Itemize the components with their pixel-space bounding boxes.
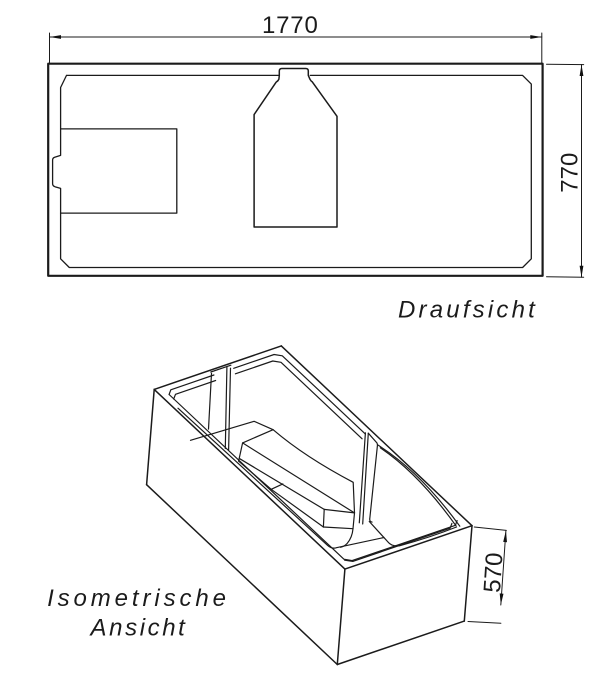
svg-text:1770: 1770: [262, 12, 319, 39]
svg-text:Isometrische: Isometrische: [47, 585, 230, 612]
svg-text:770: 770: [556, 153, 583, 193]
svg-text:Ansicht: Ansicht: [89, 615, 188, 642]
svg-text:570: 570: [479, 552, 509, 594]
svg-text:Draufsicht: Draufsicht: [398, 297, 538, 324]
